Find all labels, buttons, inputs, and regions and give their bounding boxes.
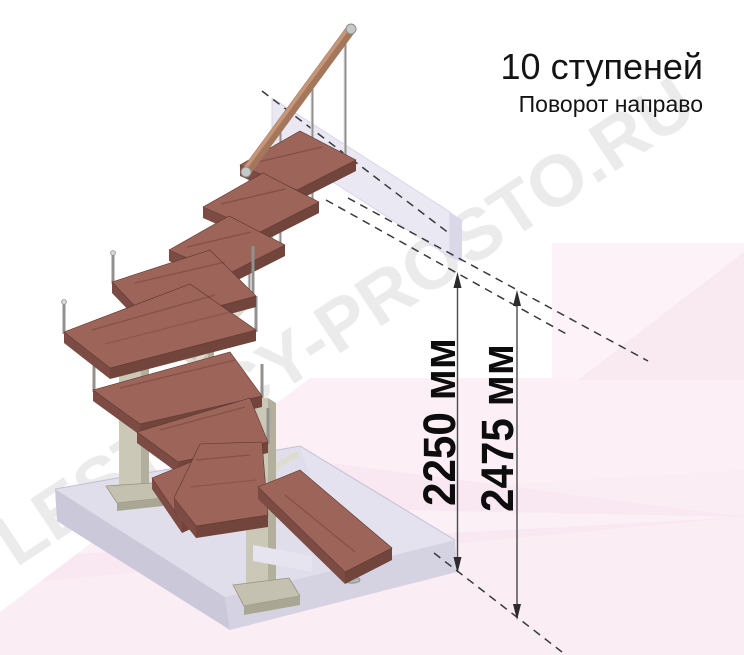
- handrail-cap-top: [346, 24, 356, 34]
- title-block: 10 ступеней Поворот направо: [501, 46, 703, 117]
- handrail-cap-bottom: [241, 167, 251, 177]
- dimension-label-outer: 2475 мм: [472, 344, 523, 512]
- diagram-subtitle: Поворот направо: [519, 91, 703, 117]
- dimension-label-inner: 2250 мм: [414, 338, 465, 506]
- diagram-title: 10 ступеней: [501, 46, 703, 87]
- staircase-diagram: LESTNICY-PROSTO.RU: [0, 0, 744, 655]
